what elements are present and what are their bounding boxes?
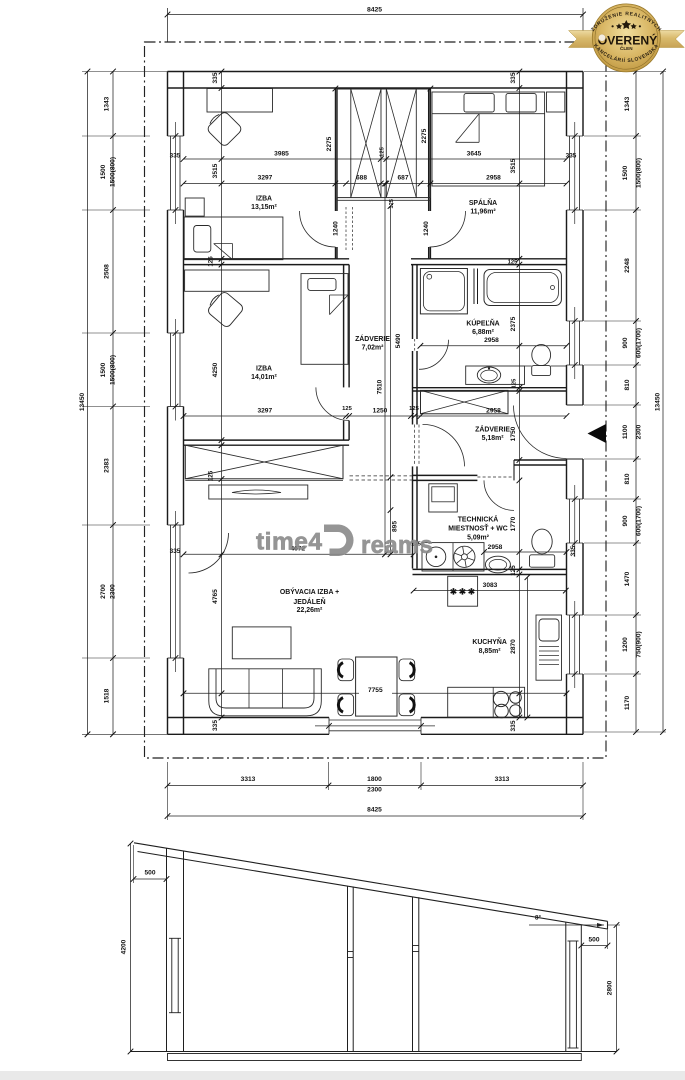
svg-text:reams: reams [361,532,433,559]
svg-text:335: 335 [170,153,181,160]
svg-text:335: 335 [570,545,577,556]
svg-text:2248: 2248 [624,258,631,273]
svg-text:125: 125 [508,260,518,266]
svg-text:1500: 1500 [622,165,629,180]
svg-text:1343: 1343 [104,96,111,111]
svg-text:ZÁDVERIE: ZÁDVERIE [355,334,390,343]
svg-text:7,02m²: 7,02m² [362,345,385,352]
svg-text:2508: 2508 [104,264,111,279]
svg-text:900: 900 [622,337,629,348]
svg-text:IZBA: IZBA [256,366,272,373]
svg-text:2958: 2958 [486,408,501,415]
svg-text:OBÝVACIA IZBA +: OBÝVACIA IZBA + [280,587,339,596]
svg-text:125: 125 [379,146,385,156]
svg-text:TECHNICKÁ: TECHNICKÁ [458,515,499,524]
svg-text:335: 335 [510,72,517,83]
svg-text:5,09m²: 5,09m² [467,535,490,542]
svg-text:6,88m²: 6,88m² [472,329,495,336]
svg-text:5490: 5490 [395,333,402,348]
svg-text:335: 335 [212,72,219,83]
svg-text:125: 125 [409,406,419,412]
svg-text:2800: 2800 [607,980,614,995]
svg-text:2700: 2700 [100,584,107,599]
svg-text:8425: 8425 [367,807,382,814]
svg-text:13450: 13450 [79,393,86,412]
svg-text:4200: 4200 [121,939,128,954]
svg-text:✱: ✱ [450,587,458,597]
svg-text:2275: 2275 [421,128,428,143]
svg-text:1250: 1250 [373,408,388,415]
svg-text:4250: 4250 [212,362,219,377]
svg-text:1240: 1240 [423,221,430,236]
svg-text:335: 335 [510,720,517,731]
svg-text:125: 125 [208,470,215,481]
svg-text:✱: ✱ [459,587,467,597]
svg-text:750(900): 750(900) [636,631,643,657]
svg-text:3645: 3645 [467,151,482,158]
svg-text:JEDÁLEŇ: JEDÁLEŇ [293,597,325,606]
svg-text:3083: 3083 [483,582,498,589]
svg-text:2383: 2383 [104,458,111,473]
svg-text:335: 335 [566,153,577,160]
svg-text:5,18m²: 5,18m² [482,435,505,442]
svg-text:2275: 2275 [326,136,333,151]
svg-text:2958: 2958 [488,544,503,551]
svg-text:14,01m²: 14,01m² [251,374,277,381]
svg-text:8,85m²: 8,85m² [479,648,502,655]
svg-text:time4: time4 [256,529,323,556]
svg-text:810: 810 [624,379,631,390]
svg-text:KÚPEĽŇA: KÚPEĽŇA [466,319,499,328]
svg-text:2300: 2300 [636,424,643,439]
svg-text:125: 125 [342,406,352,412]
svg-text:1500(800): 1500(800) [636,158,643,188]
svg-text:1500: 1500 [100,164,107,179]
svg-text:3515: 3515 [510,158,517,173]
svg-text:2300: 2300 [367,787,382,794]
svg-text:500: 500 [588,937,599,944]
svg-text:2870: 2870 [510,639,517,654]
svg-text:11,96m²: 11,96m² [470,209,496,216]
svg-text:1800: 1800 [367,776,382,783]
svg-text:125: 125 [512,378,518,388]
svg-text:3515: 3515 [212,163,219,178]
svg-text:3313: 3313 [241,776,256,783]
svg-text:1750: 1750 [510,426,517,441]
svg-text:22,26m²: 22,26m² [297,607,323,614]
svg-text:125: 125 [510,565,517,576]
svg-text:13,15m²: 13,15m² [251,204,277,211]
svg-text:KUCHYŇA: KUCHYŇA [472,637,506,646]
svg-text:SPÁLŇA: SPÁLŇA [469,198,497,207]
svg-text:810: 810 [624,473,631,484]
svg-text:688: 688 [356,175,367,182]
svg-text:8°: 8° [535,915,541,922]
svg-text:1500: 1500 [100,362,107,377]
svg-text:2300: 2300 [110,584,117,599]
svg-text:1170: 1170 [624,696,631,711]
svg-text:13450: 13450 [655,393,662,412]
svg-text:335: 335 [170,548,181,555]
svg-text:600(1700): 600(1700) [636,506,643,536]
svg-text:1240: 1240 [333,221,340,236]
svg-text:4765: 4765 [212,589,219,604]
svg-text:1343: 1343 [624,96,631,111]
svg-text:ZÁDVERIE: ZÁDVERIE [475,425,510,434]
svg-text:600(1700): 600(1700) [636,328,643,358]
svg-text:1200: 1200 [622,637,629,652]
svg-text:7510: 7510 [376,379,383,394]
svg-text:ČLEN: ČLEN [620,45,633,51]
svg-text:3985: 3985 [274,151,289,158]
svg-text:8425: 8425 [367,7,382,14]
svg-text:335: 335 [212,720,219,731]
svg-text:2958: 2958 [486,175,501,182]
svg-text:✱: ✱ [468,587,476,597]
svg-text:500: 500 [144,870,155,877]
svg-text:7755: 7755 [368,687,383,694]
svg-text:1500(800): 1500(800) [110,355,117,385]
svg-text:1770: 1770 [510,516,517,531]
svg-text:1470: 1470 [624,571,631,586]
svg-text:3297: 3297 [257,408,272,415]
svg-text:895: 895 [392,521,399,532]
svg-text:IZBA: IZBA [256,196,272,203]
svg-text:2375: 2375 [510,316,517,331]
svg-text:3313: 3313 [495,776,510,783]
svg-text:2958: 2958 [484,337,499,344]
svg-text:1518: 1518 [104,688,111,703]
svg-text:MIESTNOSŤ + WC: MIESTNOSŤ + WC [448,524,508,533]
svg-text:687: 687 [397,175,408,182]
svg-text:1100: 1100 [622,425,629,440]
svg-text:3297: 3297 [258,175,273,182]
svg-text:1500(800): 1500(800) [110,157,117,187]
svg-text:900: 900 [622,515,629,526]
svg-text:125: 125 [208,256,215,267]
